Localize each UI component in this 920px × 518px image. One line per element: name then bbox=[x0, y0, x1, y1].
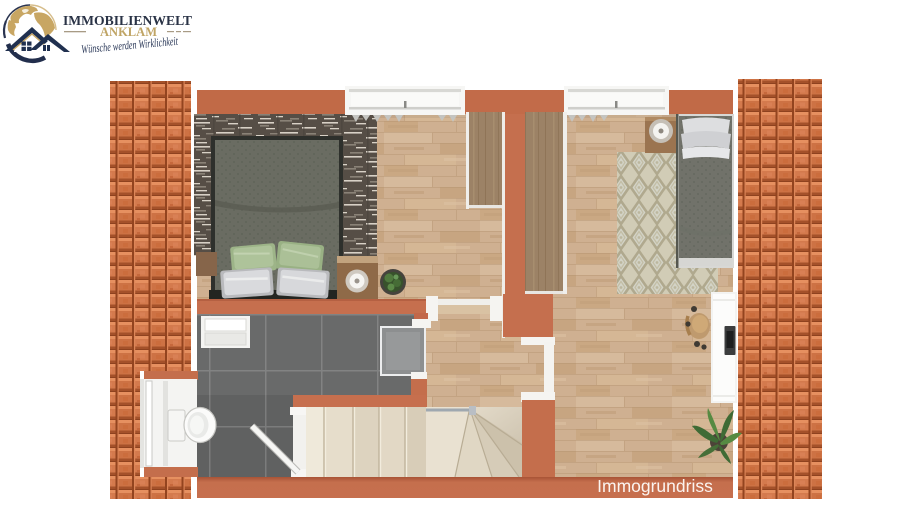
svg-text:Immogrundriss: Immogrundriss bbox=[597, 476, 713, 496]
